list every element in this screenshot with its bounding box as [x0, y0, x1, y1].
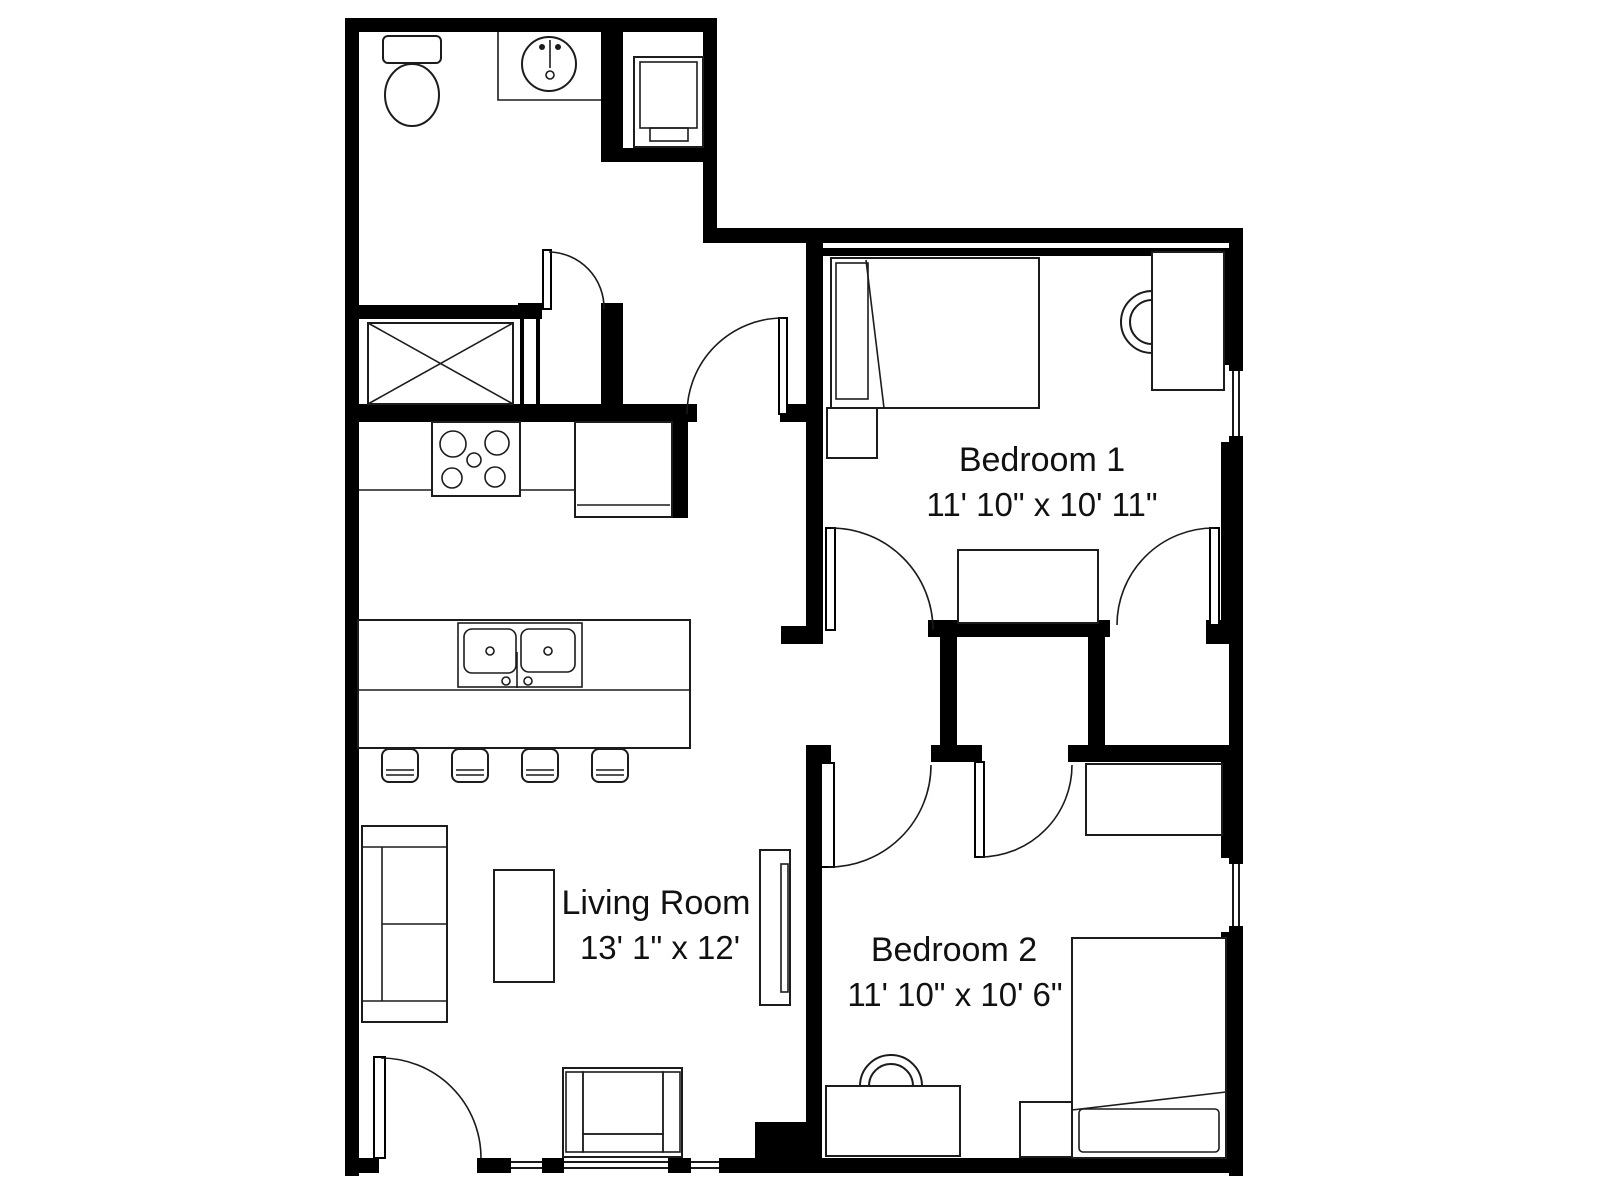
kitchen-island — [358, 620, 690, 748]
toilet-tank — [383, 36, 441, 63]
wall-bedroom1-left — [806, 236, 823, 644]
wall-left — [345, 18, 359, 1176]
wall-laundry-left — [601, 26, 623, 157]
living-room-label: Living Room — [562, 884, 751, 922]
wall-bedroom2-top-3 — [1068, 745, 1243, 762]
shower-partition-line-a — [520, 319, 524, 406]
toilet-bowl — [385, 64, 439, 126]
living-room-dimensions: 13' 1" x 12' — [580, 929, 740, 966]
wall-bathroom-lower — [345, 305, 518, 319]
wall-bottom-4 — [673, 1158, 687, 1173]
bed — [831, 258, 1039, 408]
wall-top-right — [703, 228, 1243, 243]
wall-closet-left — [940, 637, 957, 748]
wall-top-left — [345, 18, 717, 32]
dresser — [1086, 764, 1222, 835]
sofa — [362, 826, 447, 1022]
wall-bedroom2-top-2 — [931, 745, 982, 762]
wall-bedroom2-left — [806, 745, 822, 1158]
page-background — [0, 0, 1600, 1200]
shower — [368, 323, 513, 404]
bedroom2-label: Bedroom 2 — [871, 931, 1037, 969]
wall-bathroom-jamb — [518, 303, 542, 319]
bed — [1072, 938, 1226, 1158]
bar-stool — [382, 749, 418, 782]
shower-partition-line-b — [536, 319, 540, 406]
dresser — [958, 550, 1098, 623]
refrigerator — [575, 422, 672, 517]
wall-closet-right — [1088, 637, 1105, 748]
wall-bottom-2 — [477, 1158, 507, 1173]
wall-fridge-nook — [672, 420, 688, 518]
bedroom1-label: Bedroom 1 — [959, 441, 1125, 479]
washer-dryer — [634, 57, 703, 147]
faucet-handle-right — [555, 44, 561, 50]
wall-laundry-bottom — [601, 148, 713, 162]
faucet-handle-left — [539, 44, 545, 50]
bar-stool — [452, 749, 488, 782]
wall-bath-right — [703, 18, 717, 243]
coffee-table — [494, 870, 554, 982]
armchair — [563, 1068, 682, 1157]
desk — [1152, 252, 1224, 390]
wall-right-lower — [1229, 932, 1243, 1176]
bar-stool — [592, 749, 628, 782]
wall-kitchen-top — [345, 404, 697, 422]
wall-bottom-5 — [723, 1158, 1243, 1173]
bathroom-sink — [522, 37, 576, 91]
bedroom1-dimensions: 11' 10" x 10' 11" — [926, 486, 1157, 523]
desk — [826, 1086, 960, 1156]
wall-right-upper — [1229, 243, 1243, 365]
floor-plan-page: Living Room 13' 1" x 12' Bedroom 1 11' 1… — [0, 0, 1600, 1200]
wall-right-middle — [1229, 442, 1243, 858]
floor-plan-drawing: Living Room 13' 1" x 12' Bedroom 1 11' 1… — [0, 0, 1600, 1200]
wall-bedroom1-left-end — [781, 626, 823, 644]
tv-stand — [760, 850, 790, 1005]
wall-bedroom1-right-inner-b — [1221, 442, 1229, 623]
bedroom2-dimensions: 11' 10" x 10' 6" — [847, 976, 1062, 1013]
wall-living-se-step — [755, 1122, 806, 1158]
bar-stool — [522, 749, 558, 782]
wall-bottom-1 — [345, 1158, 379, 1173]
nightstand — [827, 408, 877, 458]
stove — [432, 422, 520, 496]
nightstand — [1020, 1102, 1072, 1157]
